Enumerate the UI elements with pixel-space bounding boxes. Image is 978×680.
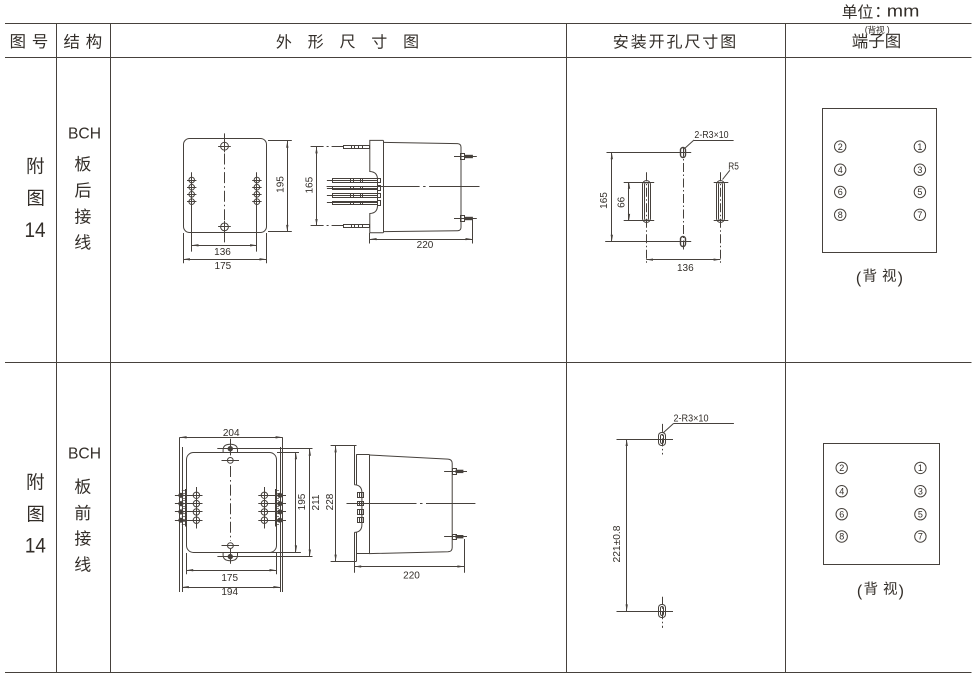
svg-text:175: 175 (221, 573, 238, 584)
svg-text:8: 8 (838, 210, 843, 220)
svg-text:165: 165 (305, 176, 316, 193)
svg-text:2: 2 (839, 463, 844, 473)
svg-text:): ) (887, 25, 890, 35)
svg-text:165: 165 (599, 192, 610, 209)
svg-text:R5: R5 (728, 161, 739, 172)
svg-text:195: 195 (297, 493, 308, 510)
svg-text:2-R3×10: 2-R3×10 (694, 130, 729, 141)
svg-text:mm: mm (887, 2, 920, 21)
svg-text:3: 3 (917, 165, 922, 175)
svg-text:BCH: BCH (68, 126, 101, 143)
svg-text:2: 2 (838, 142, 843, 152)
svg-text:14: 14 (25, 219, 46, 242)
svg-text:211: 211 (311, 494, 322, 510)
svg-text:(: ( (856, 270, 862, 287)
svg-text:3: 3 (918, 486, 923, 496)
svg-text:7: 7 (917, 210, 922, 220)
svg-text:7: 7 (918, 532, 923, 542)
svg-text:4: 4 (838, 165, 843, 175)
svg-text:136: 136 (214, 247, 231, 258)
svg-text:4: 4 (839, 486, 844, 496)
svg-text:): ) (899, 583, 904, 600)
svg-text:1: 1 (918, 463, 923, 473)
svg-text:1: 1 (917, 142, 922, 152)
svg-text:221±0.8: 221±0.8 (612, 525, 623, 562)
svg-text:204: 204 (223, 428, 240, 439)
svg-text:175: 175 (215, 261, 232, 272)
svg-text:14: 14 (25, 534, 46, 557)
svg-text:66: 66 (617, 196, 628, 208)
svg-text:6: 6 (838, 187, 843, 197)
svg-text:BCH: BCH (68, 446, 101, 463)
svg-text:(: ( (857, 583, 863, 600)
svg-text:195: 195 (276, 176, 287, 193)
svg-text:(: ( (865, 25, 868, 35)
svg-text:194: 194 (221, 587, 238, 598)
svg-text:2-R3×10: 2-R3×10 (674, 414, 709, 425)
svg-text:6: 6 (839, 509, 844, 519)
svg-text:): ) (898, 270, 903, 287)
svg-text:228: 228 (325, 493, 336, 510)
svg-text:8: 8 (839, 532, 844, 542)
svg-text:5: 5 (918, 509, 923, 519)
svg-text:136: 136 (677, 263, 694, 274)
svg-text:220: 220 (417, 240, 434, 251)
svg-text:220: 220 (403, 571, 420, 582)
svg-text:5: 5 (917, 187, 922, 197)
